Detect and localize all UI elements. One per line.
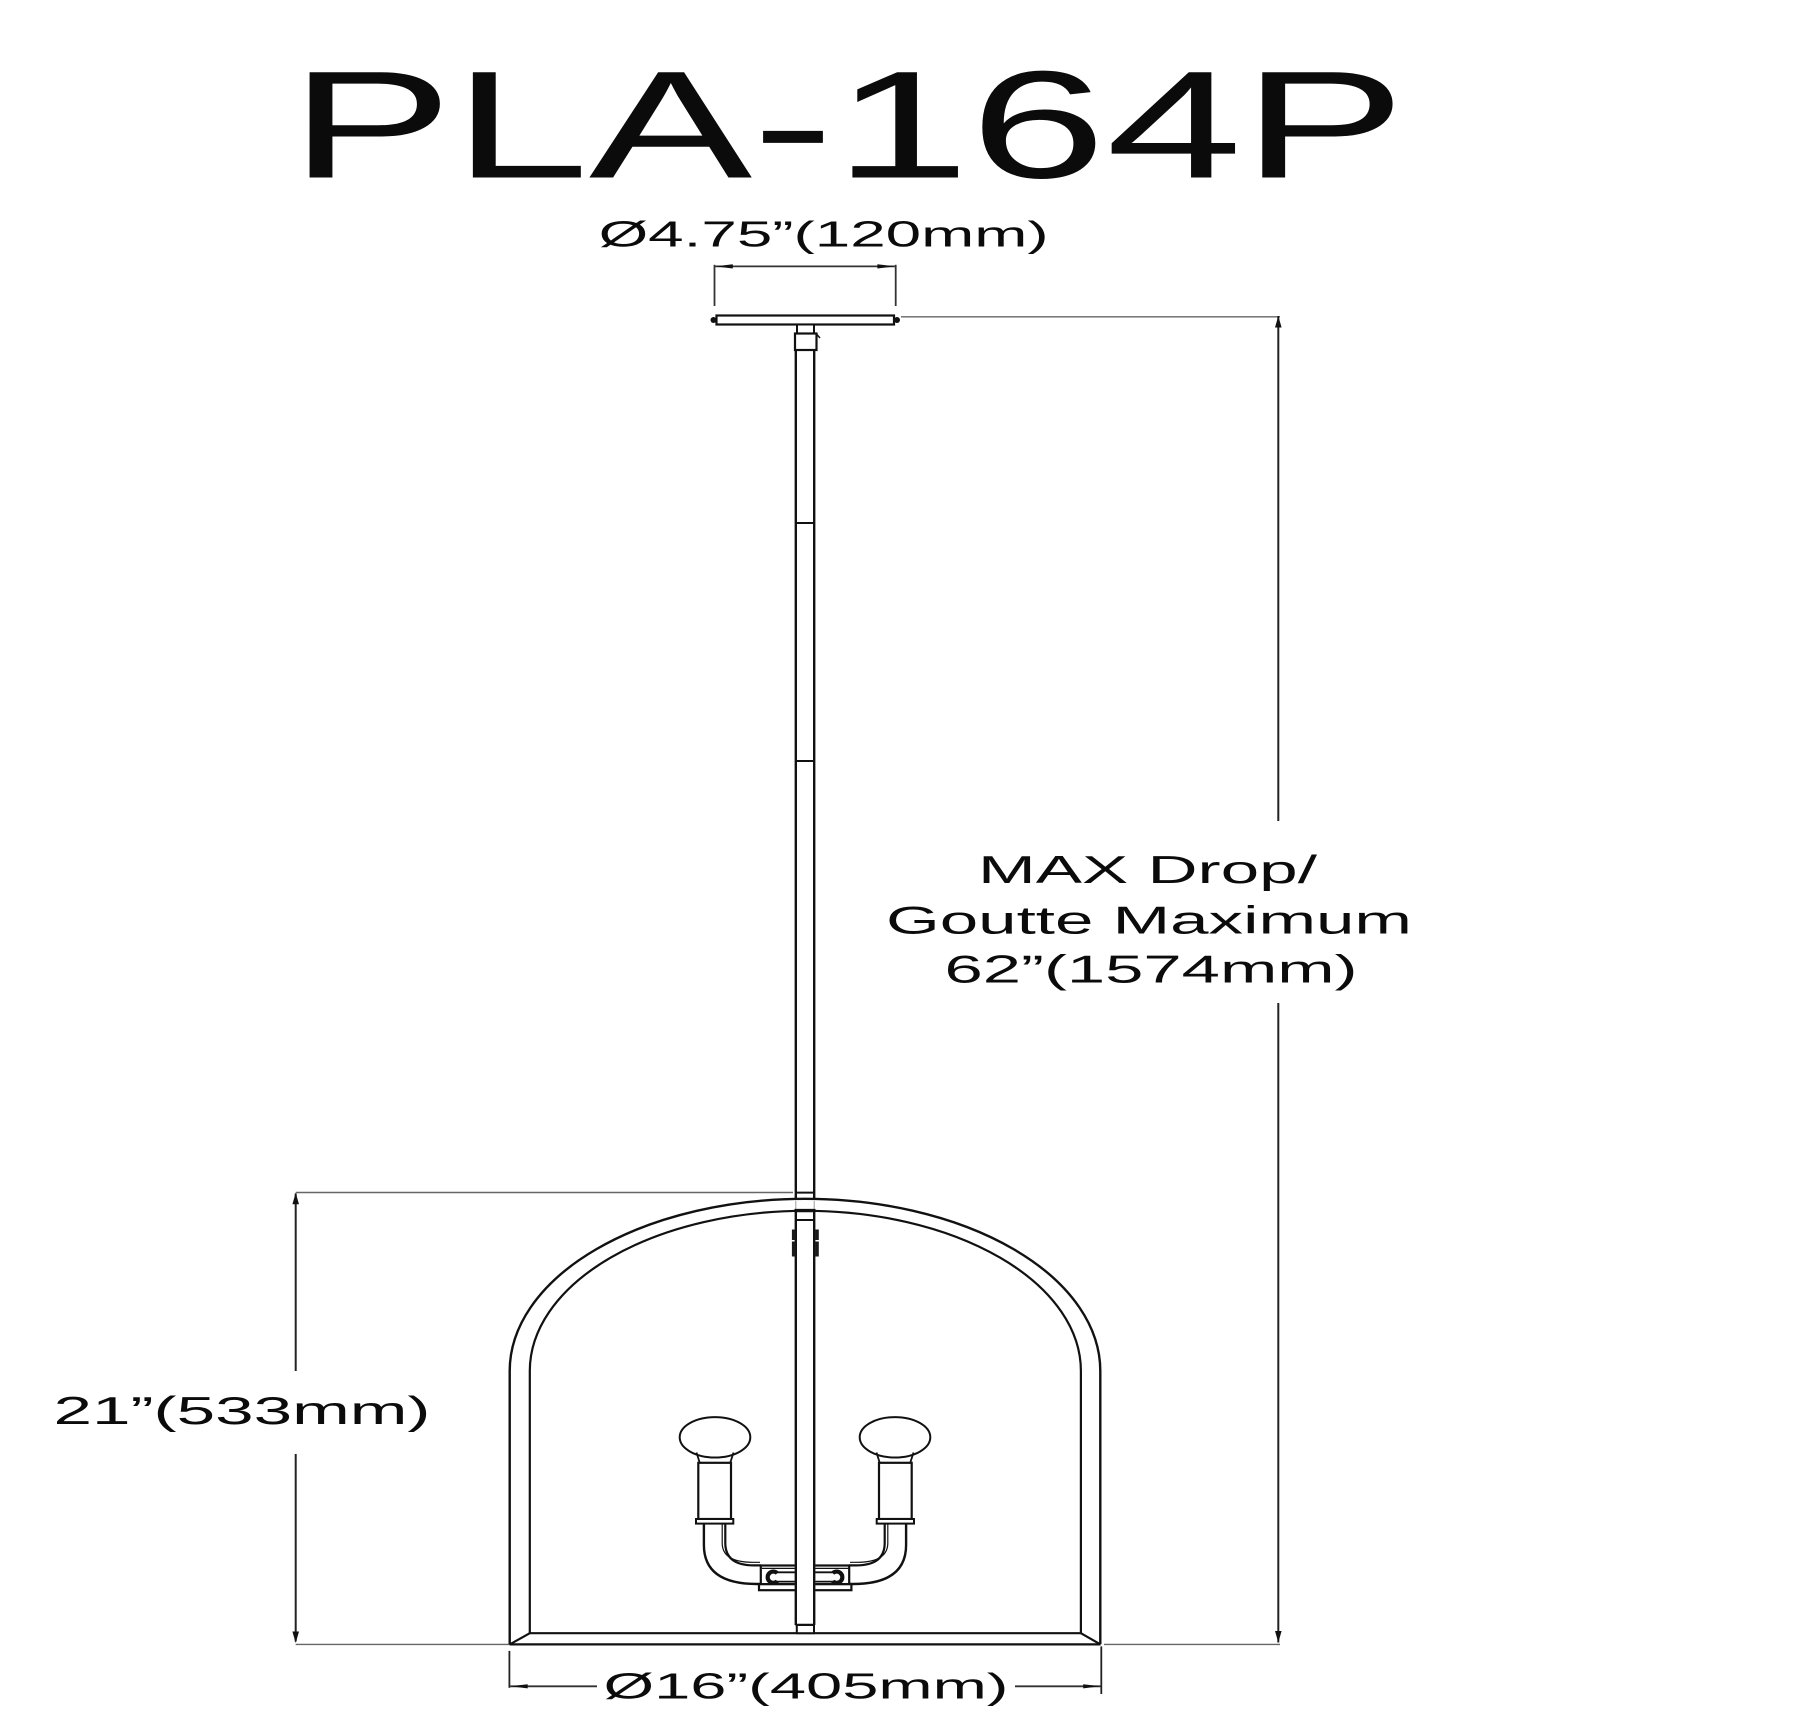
svg-text:Ø4.75”(120mm): Ø4.75”(120mm) — [599, 213, 1049, 254]
svg-text:PLA-164P: PLA-164P — [290, 40, 1406, 211]
svg-text:MAX Drop/: MAX Drop/ — [978, 849, 1318, 892]
svg-text:Ø16”(405mm): Ø16”(405mm) — [604, 1665, 1009, 1706]
svg-text:21”(533mm): 21”(533mm) — [54, 1390, 431, 1433]
svg-text:Goutte Maximum: Goutte Maximum — [886, 900, 1412, 943]
svg-text:62”(1574mm): 62”(1574mm) — [945, 949, 1358, 992]
